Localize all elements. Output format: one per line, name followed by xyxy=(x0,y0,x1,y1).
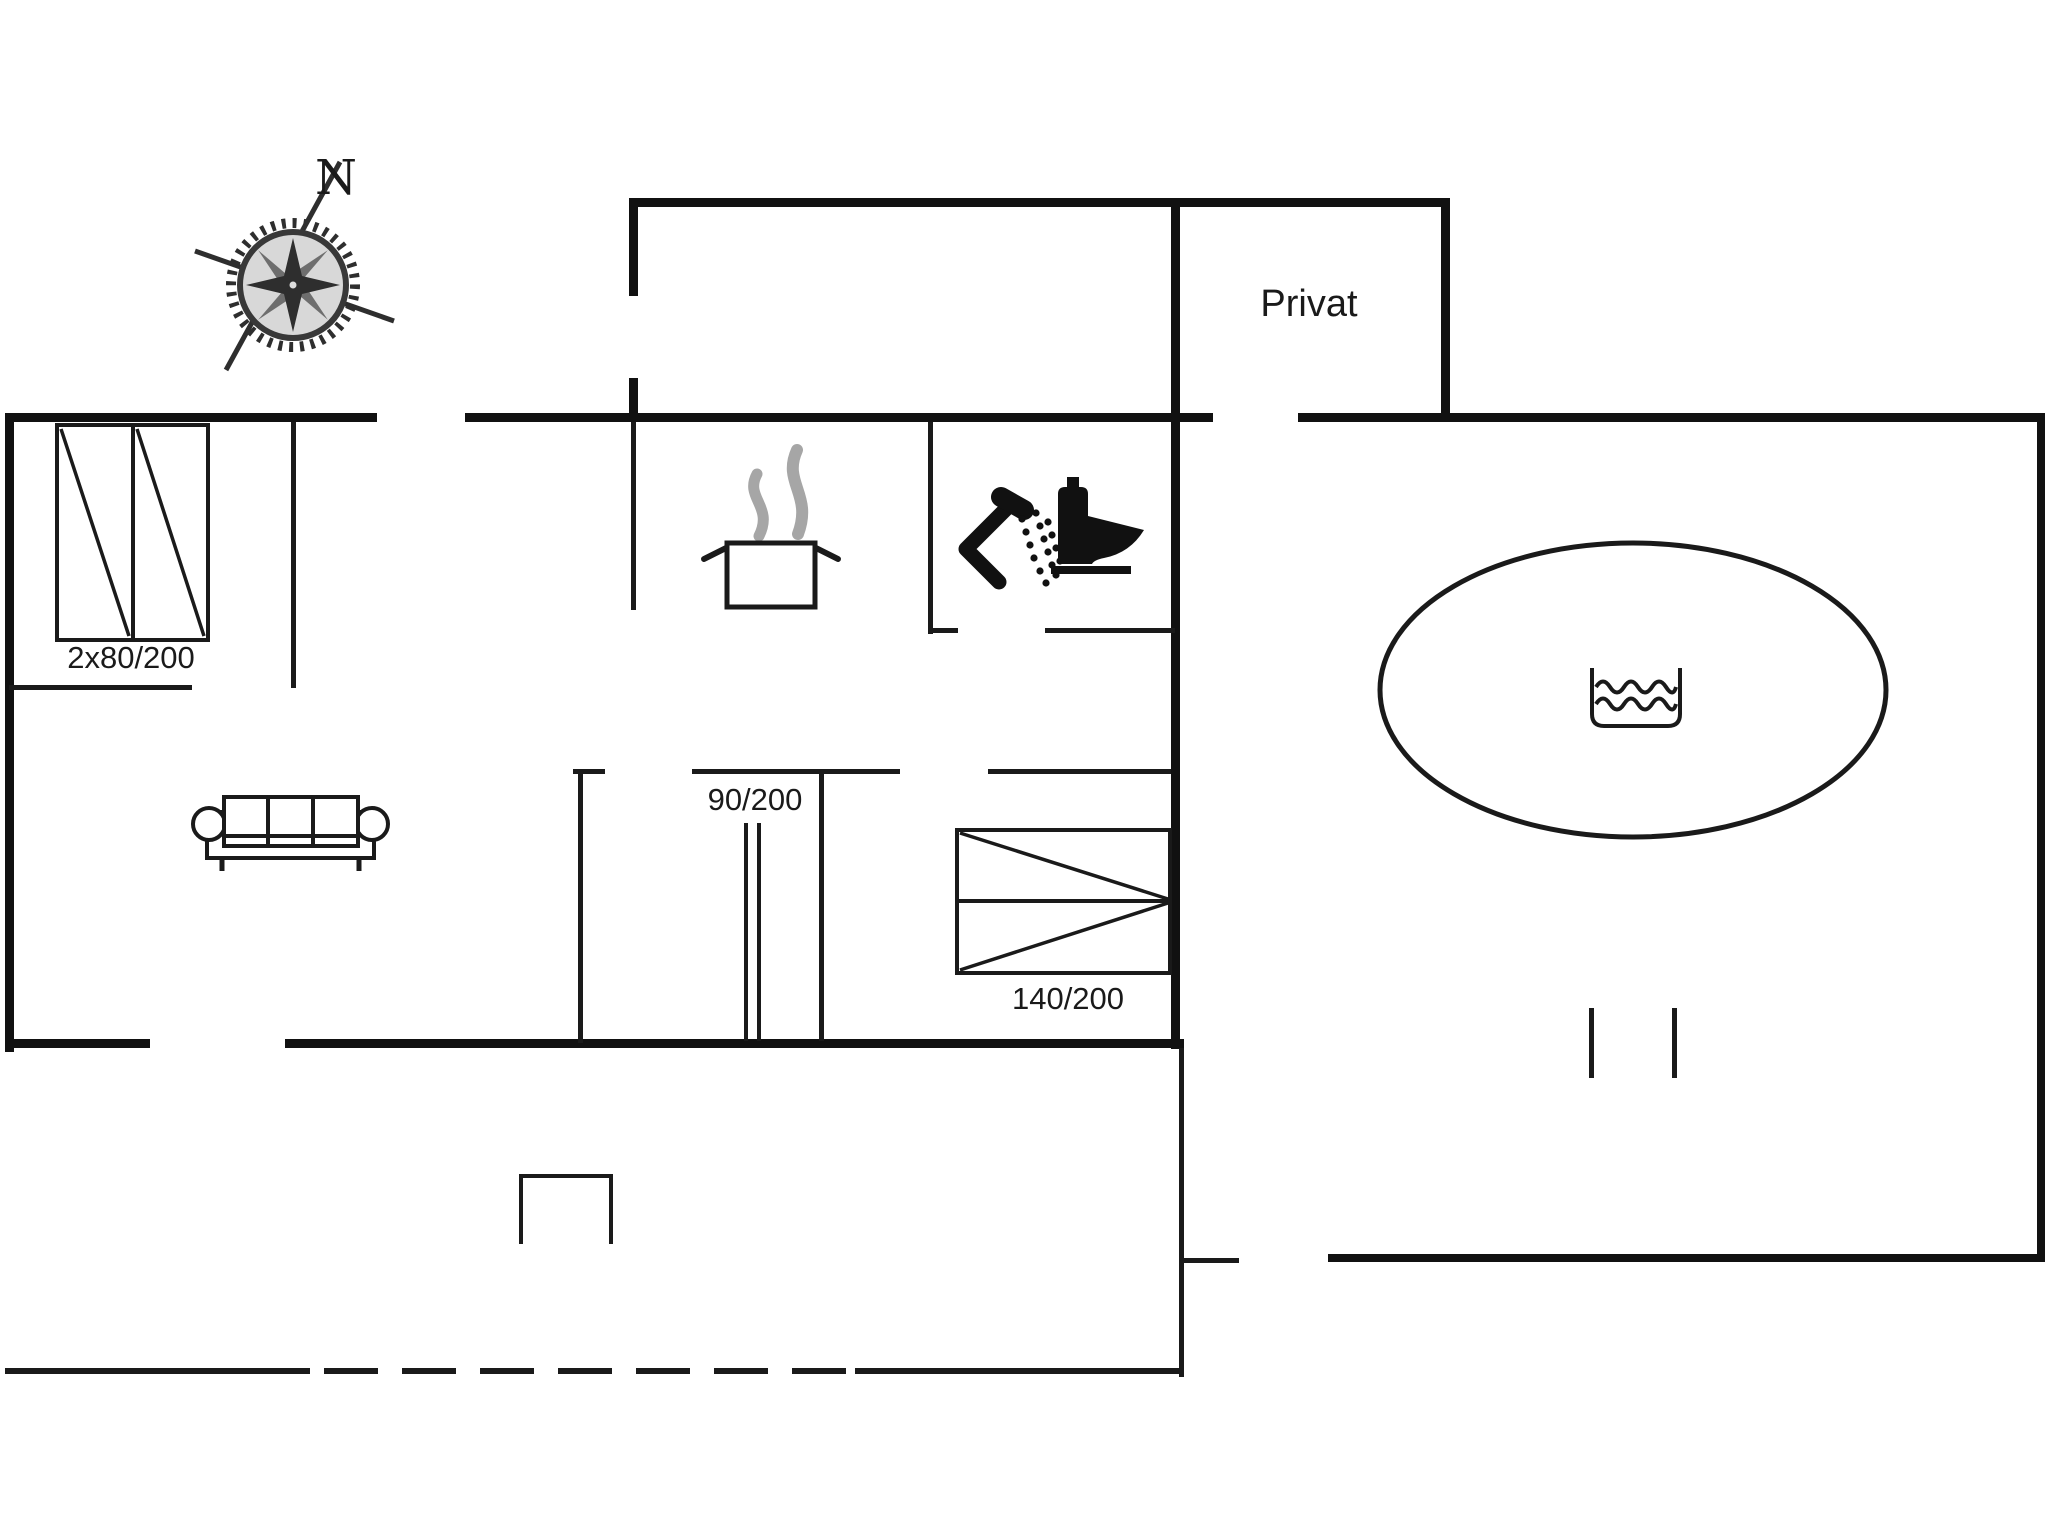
exterior-walls xyxy=(5,198,2045,1262)
toilet-icon xyxy=(1051,477,1144,574)
wall-hall-a xyxy=(573,769,605,774)
wall-vestibule-top xyxy=(629,198,1449,207)
wardrobe-dimension-label: 2x80/200 xyxy=(40,641,222,675)
wall-hall-left xyxy=(578,769,583,1043)
bed-dimension-label: 140/200 xyxy=(993,982,1143,1016)
wall-entry-room-bottom xyxy=(9,685,192,690)
sofa-armrest-right xyxy=(356,808,388,840)
wall-north-annex xyxy=(1298,413,2044,422)
basin-wave-2 xyxy=(1596,699,1676,710)
pool-entry-post-left xyxy=(1589,1008,1594,1078)
cooking-pot-steam-icon xyxy=(704,450,838,607)
shower-icon xyxy=(966,497,1064,587)
basin-wave-1 xyxy=(1596,682,1676,693)
whirlpool-oval xyxy=(1380,543,1886,837)
wall-annex-east xyxy=(2037,413,2045,1262)
sofa-back-cushions xyxy=(224,797,358,836)
double-bed-icon xyxy=(957,830,1170,973)
terrace-step xyxy=(519,1174,613,1244)
sofa-armrest-left xyxy=(193,808,225,840)
wall-annex-stub xyxy=(1184,1258,1239,1263)
floor-plan: N Privat 2x80/200 90/200 140/200 xyxy=(0,0,2048,1536)
wall-east-house xyxy=(1171,198,1180,1049)
water-basin-icon xyxy=(1592,668,1680,726)
wall-privat-right xyxy=(1441,198,1450,422)
wall-north-b xyxy=(465,413,1213,422)
compass-north-label: N xyxy=(308,152,364,205)
compass-rose-icon xyxy=(195,162,394,370)
wall-south-b xyxy=(285,1039,1184,1048)
terrace-edge-dash xyxy=(714,1368,768,1374)
terrace-edge-solid-east xyxy=(855,1368,1184,1374)
wall-hall-c xyxy=(988,769,1171,774)
wall-west xyxy=(5,413,14,1052)
sliding-door-leaf-a xyxy=(744,823,748,1041)
terrace-edge-solid-west xyxy=(5,1368,310,1374)
compass-center xyxy=(290,282,297,289)
sliding-door-dimension-label: 90/200 xyxy=(693,783,817,817)
step-left xyxy=(519,1174,523,1244)
wall-kitchen-bath-divider xyxy=(928,422,933,634)
wall-vestibule-left-upper xyxy=(629,198,638,296)
toilet-body xyxy=(1058,477,1144,564)
wall-annex-south xyxy=(1328,1254,2045,1262)
pool-entry-post-right xyxy=(1672,1008,1677,1078)
wall-closet-right xyxy=(819,769,824,1041)
privat-room-label: Privat xyxy=(1238,284,1380,326)
whirlpool xyxy=(1380,543,1886,1078)
terrace-edge-dash xyxy=(792,1368,846,1374)
wall-north-a xyxy=(5,413,377,422)
shower-spray-dots xyxy=(1018,509,1063,586)
wall-terrace-east xyxy=(1179,1048,1184,1377)
steam-curl-right xyxy=(793,450,802,534)
sliding-door-leaf-b xyxy=(757,823,761,1041)
wall-bath-bottom-b xyxy=(1045,628,1175,633)
wall-vestibule-left-lower xyxy=(629,378,638,422)
step-right xyxy=(609,1174,613,1244)
wall-bath-bottom-a xyxy=(930,628,958,633)
wall-hall-b xyxy=(692,769,900,774)
shower-head xyxy=(1001,497,1024,510)
terrace-edge-dash xyxy=(636,1368,690,1374)
wall-kitchen-left xyxy=(631,422,636,610)
sofa-icon xyxy=(193,797,388,871)
terrace-edge-dash xyxy=(480,1368,534,1374)
step-top xyxy=(519,1174,613,1178)
shower-arm xyxy=(966,507,1008,582)
floor-plan-drawing xyxy=(0,0,2048,1536)
terrace-boundary xyxy=(5,1368,1184,1374)
terrace-edge-dash xyxy=(324,1368,378,1374)
toilet-base xyxy=(1051,566,1131,574)
terrace-edge-dash xyxy=(402,1368,456,1374)
wall-south-a xyxy=(5,1039,150,1048)
double-wardrobe-icon xyxy=(57,425,208,640)
terrace-edge-dash xyxy=(558,1368,612,1374)
steam-curl-left xyxy=(754,474,764,536)
pot-body xyxy=(727,543,815,607)
wall-entry-room-right xyxy=(291,422,296,688)
